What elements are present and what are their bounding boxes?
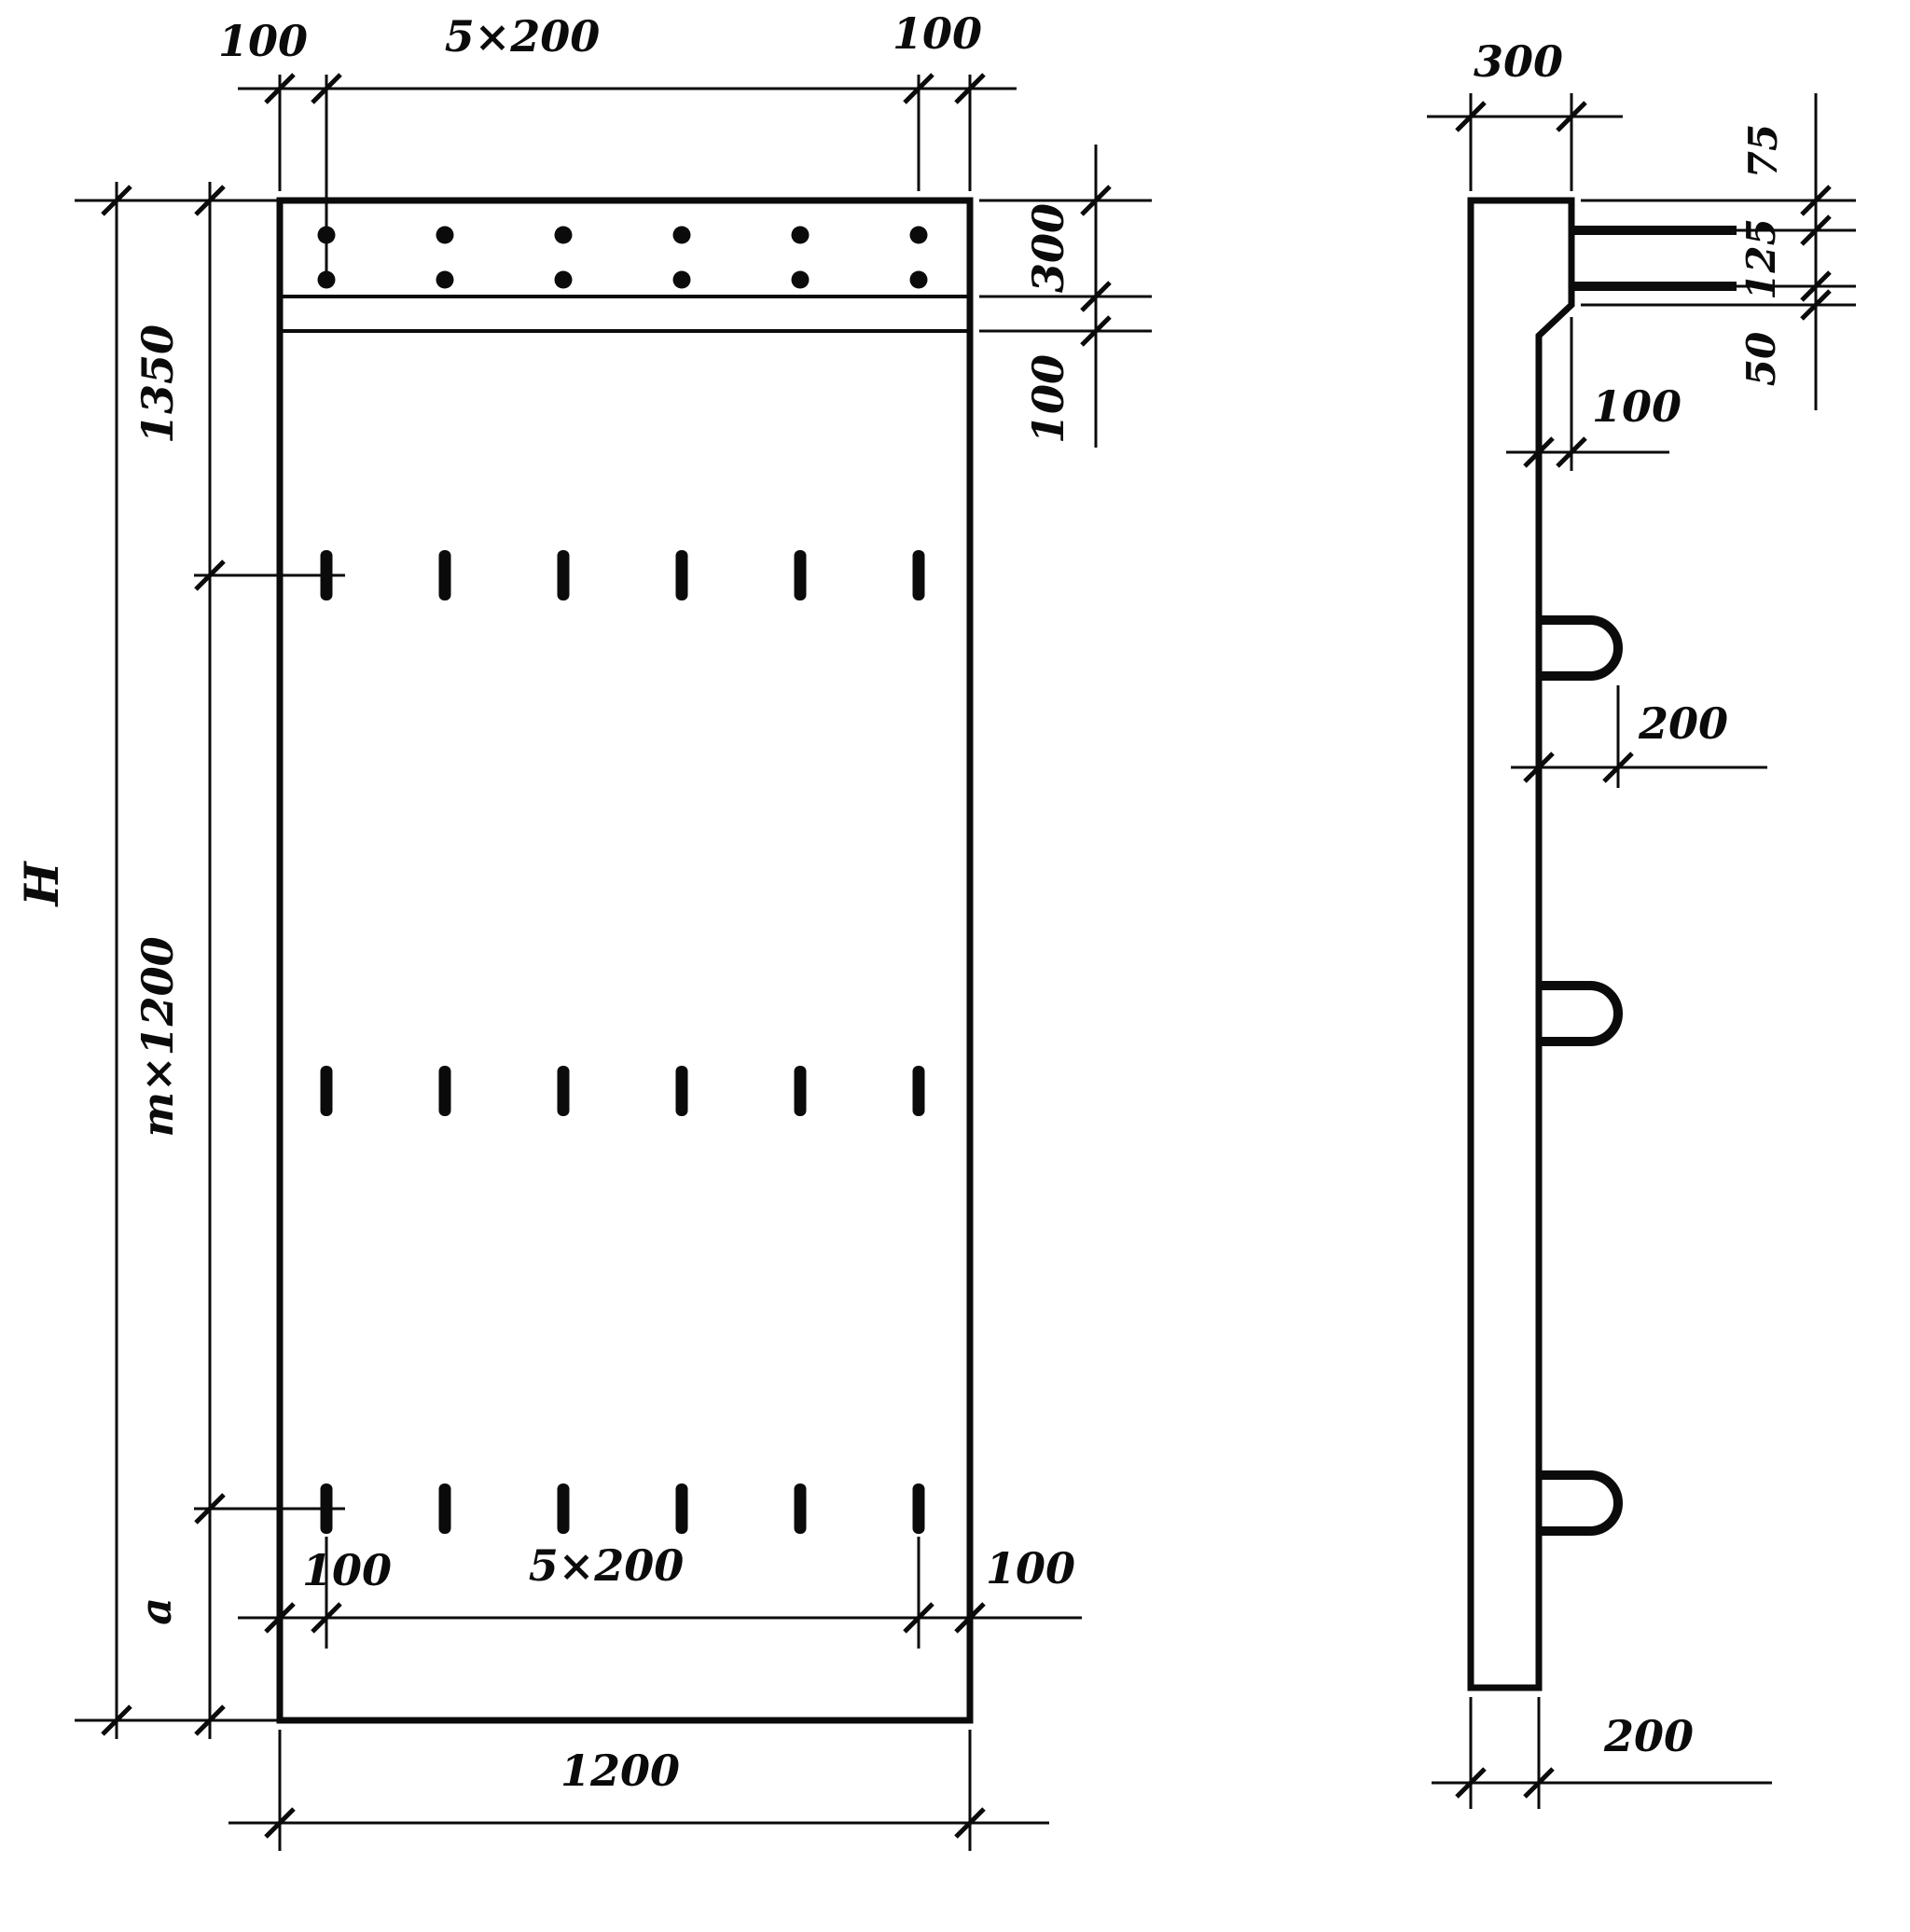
dim-label-panel-thickness: 200 [1603, 1711, 1694, 1761]
slot-mark [795, 1483, 807, 1534]
side-view: 300 75 125 50 100 [1427, 36, 1856, 1809]
dim-label-bottom-center: 5×200 [529, 1540, 685, 1591]
dim-label-band-height: 300 [1023, 203, 1073, 293]
slot-mark [913, 1483, 925, 1534]
slot-mark [676, 1066, 688, 1116]
slot-mark [913, 1066, 925, 1116]
side-right-dimension: 75 125 50 [1581, 93, 1856, 410]
slot-mark [913, 550, 925, 600]
anchor-dot [910, 227, 928, 244]
slot-mark [321, 1066, 333, 1116]
slot-mark [439, 1066, 451, 1116]
dim-label-lower: a [131, 1597, 181, 1625]
front-right-dimension: 300 100 [979, 145, 1152, 448]
slot-mark [558, 1483, 570, 1534]
anchor-dot [792, 271, 810, 289]
front-panel-outline [280, 200, 970, 1720]
side-bottom-dimension: 200 [1432, 1697, 1772, 1809]
slot-mark [558, 550, 570, 600]
front-width-dimension: 1200 [228, 1730, 1049, 1851]
lifting-loop [1539, 620, 1618, 676]
slot-mark [676, 1483, 688, 1534]
drawing-sheet: 100 5×200 100 300 100 [0, 0, 1910, 1932]
side-ledge-dimension: 100 [1506, 317, 1682, 471]
slot-mark [439, 550, 451, 600]
anchor-dot [436, 227, 454, 244]
lifting-loop [1539, 986, 1618, 1042]
dim-label-ledge-depth: 100 [1592, 381, 1682, 432]
anchor-dot-grid [318, 227, 928, 289]
slot-mark [795, 550, 807, 600]
dim-label-strip-height: 100 [1023, 354, 1073, 444]
anchor-dot [555, 271, 573, 289]
slot-grid [321, 550, 925, 1534]
anchor-dot [436, 271, 454, 289]
anchor-dot [555, 227, 573, 244]
lifting-loop [1539, 1475, 1618, 1531]
dim-label-top-center: 5×200 [445, 11, 601, 62]
dim-label-overall-height: H [14, 861, 69, 908]
side-panel-outline [1471, 200, 1571, 1688]
front-left-dimension: 1350 m×1200 a H [14, 182, 345, 1739]
anchor-dot [792, 227, 810, 244]
dim-label-upper: 1350 [132, 324, 183, 444]
dim-label-bottom-left: 100 [302, 1545, 392, 1595]
front-top-dimension: 100 5×200 100 [218, 8, 1017, 284]
dim-label-loop-length: 200 [1638, 698, 1728, 749]
dim-label-top-right: 100 [893, 8, 982, 59]
slot-mark [439, 1483, 451, 1534]
dim-label-side-upper: 75 [1740, 124, 1786, 178]
side-loop-dimension: 200 [1511, 685, 1767, 788]
front-bottom-dimension: 100 5×200 100 [238, 1537, 1082, 1649]
slot-mark [795, 1066, 807, 1116]
panel-drawing: 100 5×200 100 300 100 [0, 0, 1910, 1932]
dim-label-side-middle: 125 [1738, 218, 1784, 300]
anchor-dot [910, 271, 928, 289]
slot-mark [676, 550, 688, 600]
dim-label-side-top-width: 300 [1474, 36, 1563, 87]
front-view: 100 5×200 100 300 100 [14, 8, 1152, 1851]
dim-label-side-lower: 50 [1738, 332, 1784, 386]
slot-mark [558, 1066, 570, 1116]
dim-label-top-left: 100 [218, 16, 308, 66]
anchor-dot [673, 227, 691, 244]
side-top-dimension: 300 [1427, 36, 1623, 191]
dim-label-middle: m×1200 [132, 936, 183, 1137]
dim-label-overall-width: 1200 [561, 1746, 680, 1796]
anchor-dot [673, 271, 691, 289]
dim-label-bottom-right: 100 [986, 1543, 1075, 1594]
